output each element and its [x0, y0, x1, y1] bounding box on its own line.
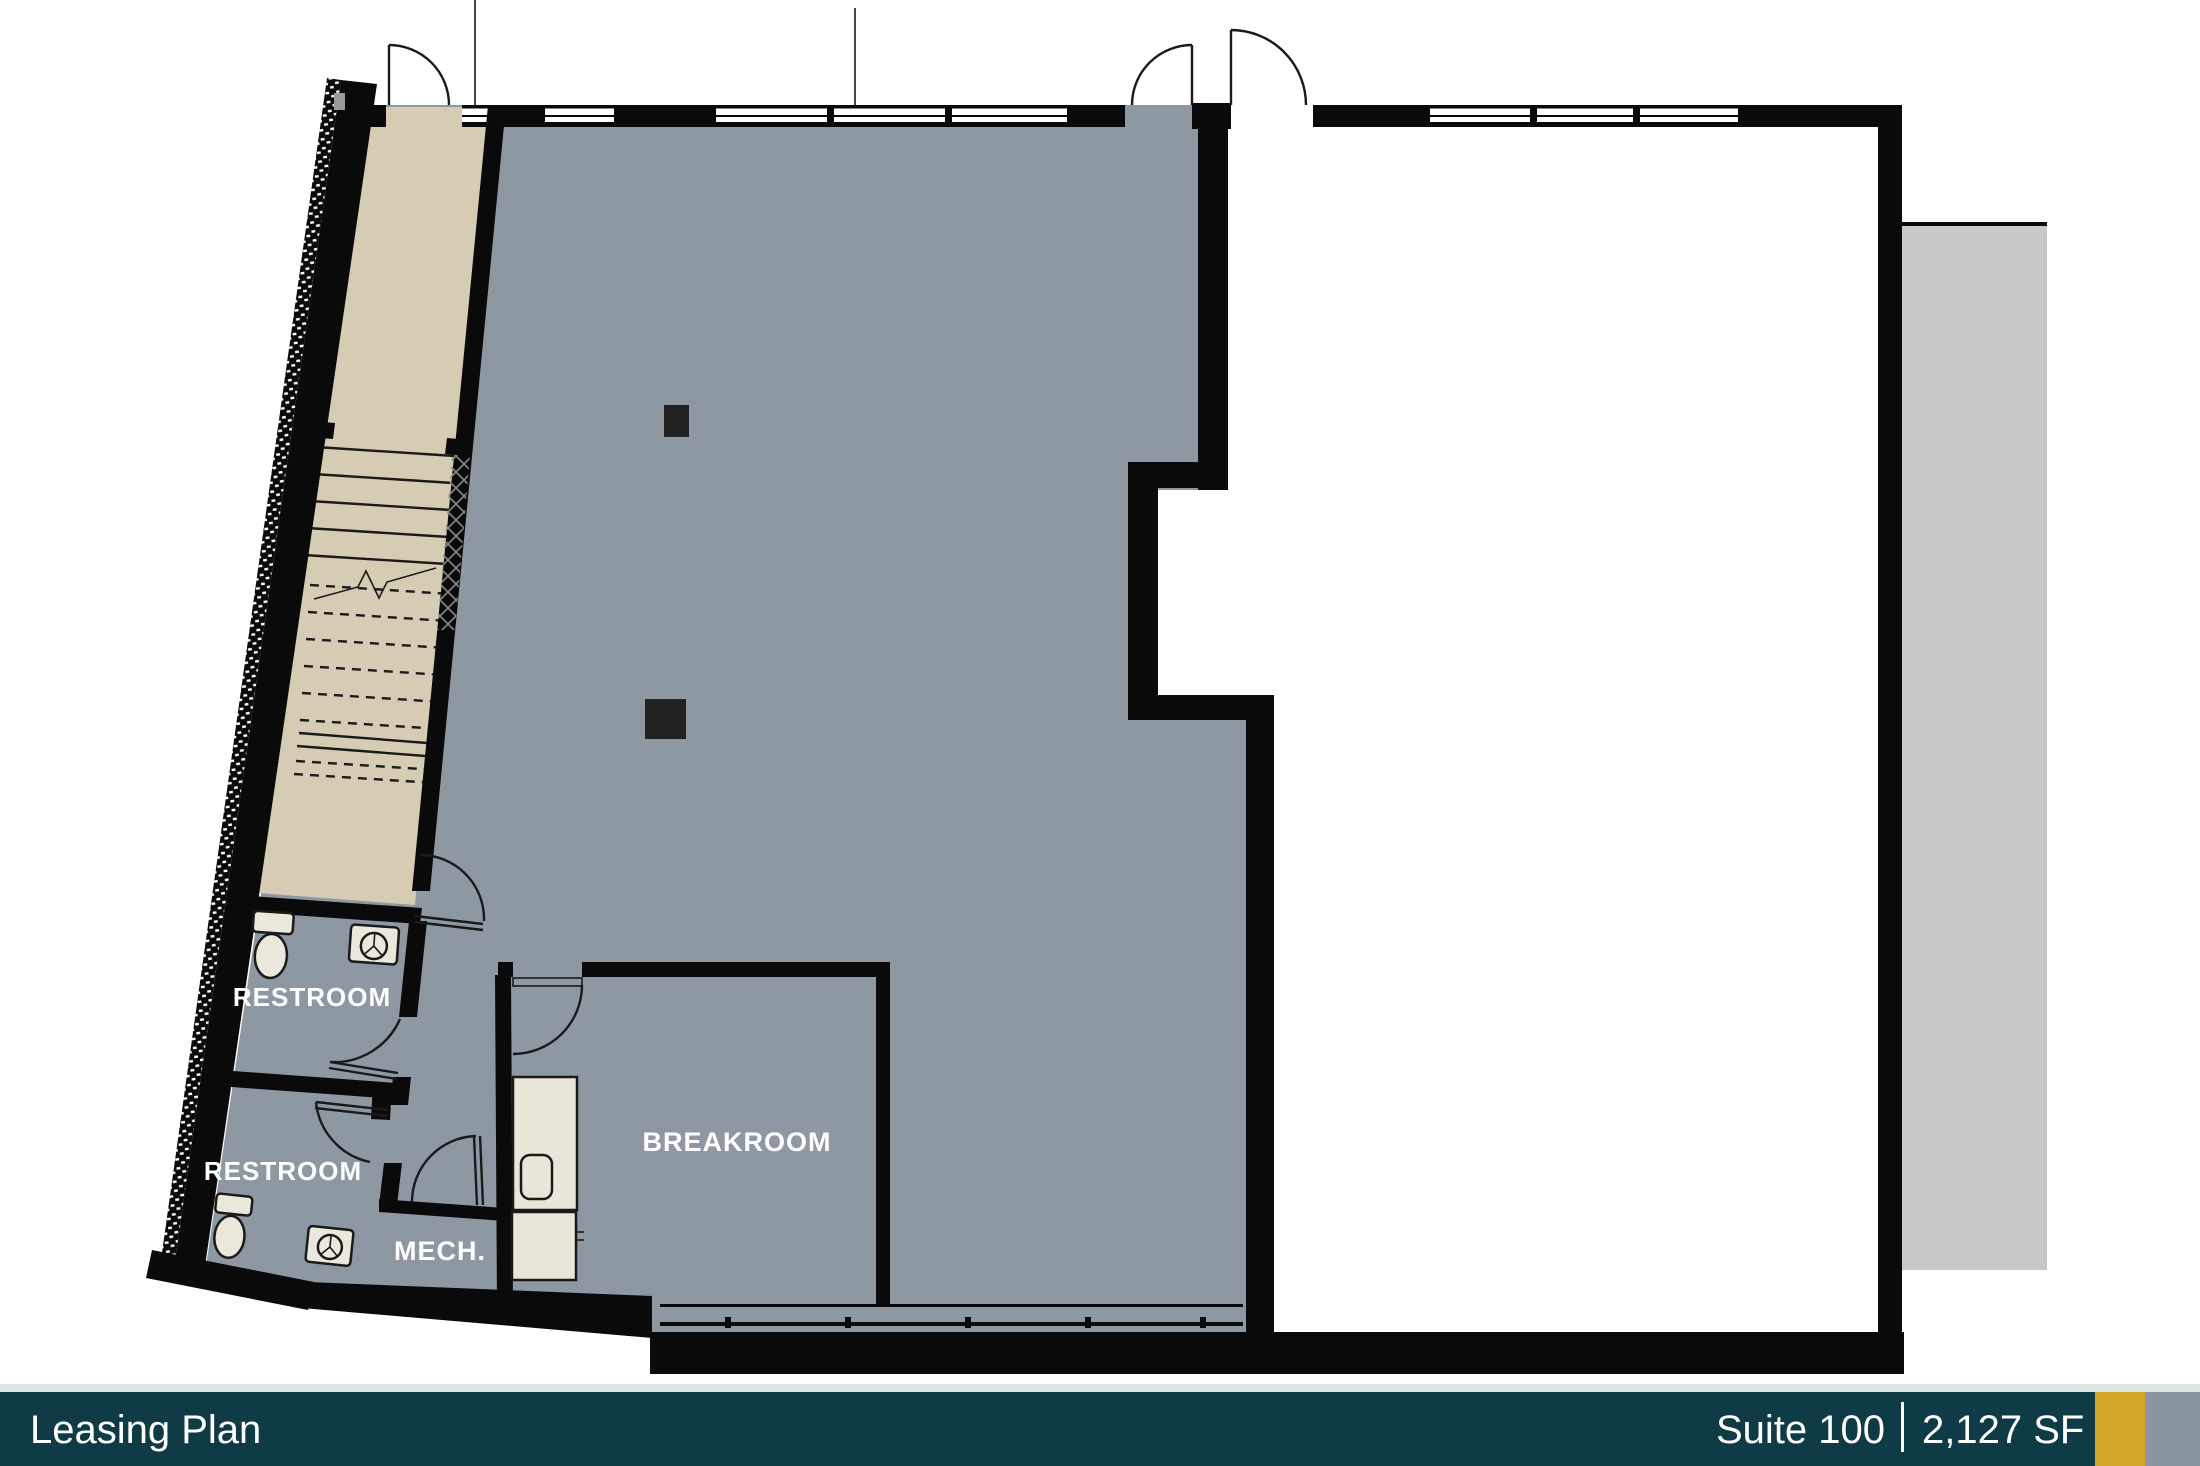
suite-name: Suite 100 — [1716, 1408, 1885, 1452]
divider-wall-upper — [1198, 105, 1228, 490]
mullion — [1633, 105, 1640, 127]
south-sill-line — [660, 1322, 1243, 1326]
restroom-upper-label: RESTROOM — [233, 982, 391, 1012]
mullion — [1530, 105, 1537, 127]
mullion — [827, 105, 834, 127]
adjacent-building-backdrop — [1878, 222, 2047, 1270]
stair-stub-wall — [307, 421, 335, 439]
footer-separator — [1901, 1402, 1904, 1452]
breakroom-west-wall — [495, 975, 513, 1307]
east-exterior-wall — [1878, 105, 1902, 1374]
kitchen-counter — [512, 1077, 584, 1280]
corridor-wall — [390, 1077, 411, 1105]
stair-stub-wall — [445, 438, 470, 456]
sill-tick — [725, 1317, 731, 1328]
breakroom-top-wall — [582, 962, 890, 977]
wall-segment — [1738, 105, 1902, 127]
window — [462, 105, 489, 127]
divider-wall-lower — [1246, 695, 1274, 1340]
south-sill-line — [660, 1304, 1243, 1307]
leasing-plan-page: RESTROOM RESTROOM MECH. BREAKROOM Leasin… — [0, 0, 2200, 1466]
mech-label: MECH. — [394, 1236, 486, 1266]
vestibule-entry-door — [389, 0, 475, 105]
sill-tick — [1085, 1317, 1091, 1328]
divider-wall-mid — [1128, 462, 1158, 720]
suite-area: 2,127 SF — [1922, 1408, 2084, 1452]
wall-segment — [614, 105, 716, 127]
column — [664, 405, 689, 437]
sink-lower — [305, 1226, 354, 1267]
breakroom-wall-stub — [498, 962, 513, 977]
wall-segment — [1313, 105, 1430, 127]
sink-upper — [349, 924, 399, 964]
suite-100-entry-door — [1132, 45, 1192, 105]
refrigerator — [512, 1212, 576, 1280]
south-wall-main — [650, 1332, 1904, 1374]
footer-gray-block — [2145, 1392, 2200, 1466]
sill-tick — [845, 1317, 851, 1328]
breakroom-east-wall — [876, 962, 890, 1307]
footer-gold-block — [2095, 1392, 2145, 1466]
backdrop-strip — [1895, 226, 2047, 1270]
plan-title: Leasing Plan — [30, 1408, 261, 1452]
column — [645, 699, 686, 739]
restroom-lower-label: RESTROOM — [204, 1156, 362, 1186]
sill-tick — [1200, 1317, 1206, 1328]
wall-segment — [358, 105, 386, 127]
breakroom-label: BREAKROOM — [643, 1127, 832, 1157]
window — [545, 105, 614, 127]
kitchen-sink — [521, 1155, 552, 1199]
sill-tick — [965, 1317, 971, 1328]
wall-segment — [1067, 105, 1125, 127]
vacant-suite-entry-door — [1231, 30, 1306, 105]
window — [1430, 105, 1738, 127]
floor-plan-canvas: RESTROOM RESTROOM MECH. BREAKROOM Leasin… — [0, 0, 2200, 1466]
wall-stub-detail — [334, 93, 345, 110]
footer-top-line — [0, 1384, 2200, 1392]
window — [716, 105, 1067, 127]
mullion — [945, 105, 952, 127]
footer: Leasing Plan Suite 100 2,127 SF — [0, 1384, 2200, 1466]
